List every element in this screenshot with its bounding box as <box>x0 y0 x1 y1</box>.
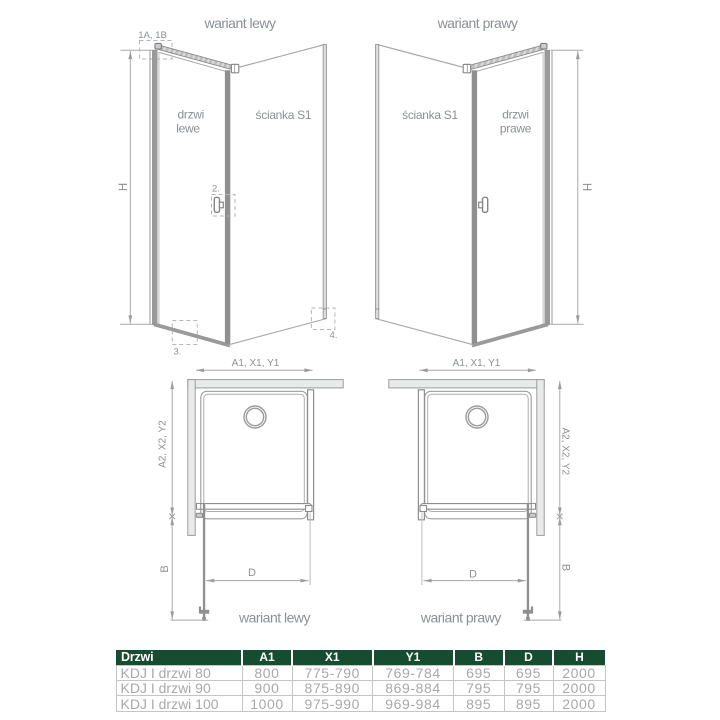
svg-text:H: H <box>580 183 592 191</box>
svg-text:D: D <box>248 567 256 579</box>
svg-text:wariant prawy: wariant prawy <box>420 610 501 626</box>
svg-text:H: H <box>118 183 130 191</box>
svg-text:ścianka S1: ścianka S1 <box>402 108 458 122</box>
svg-text:lewe: lewe <box>176 121 200 135</box>
svg-text:wariant lewy: wariant lewy <box>203 15 276 31</box>
svg-text:A2, X2, Y2: A2, X2, Y2 <box>559 427 570 475</box>
svg-text:B: B <box>159 565 171 572</box>
svg-text:4.: 4. <box>330 330 338 341</box>
svg-text:A2, X2, Y2: A2, X2, Y2 <box>157 420 168 468</box>
svg-text:drzwi: drzwi <box>502 107 529 121</box>
svg-text:3.: 3. <box>174 347 182 358</box>
svg-text:A1, X1, Y1: A1, X1, Y1 <box>232 358 280 369</box>
svg-text:A1, X1, Y1: A1, X1, Y1 <box>453 358 501 369</box>
svg-text:ścianka S1: ścianka S1 <box>256 108 312 122</box>
svg-text:2.: 2. <box>212 184 220 195</box>
svg-text:D: D <box>469 569 477 581</box>
svg-text:wariant prawy: wariant prawy <box>437 15 518 31</box>
svg-text:1A, 1B: 1A, 1B <box>138 30 167 41</box>
svg-text:prawe: prawe <box>500 121 532 135</box>
svg-text:drzwi: drzwi <box>178 107 205 121</box>
svg-text:B: B <box>560 564 572 571</box>
svg-text:wariant lewy: wariant lewy <box>238 610 311 626</box>
